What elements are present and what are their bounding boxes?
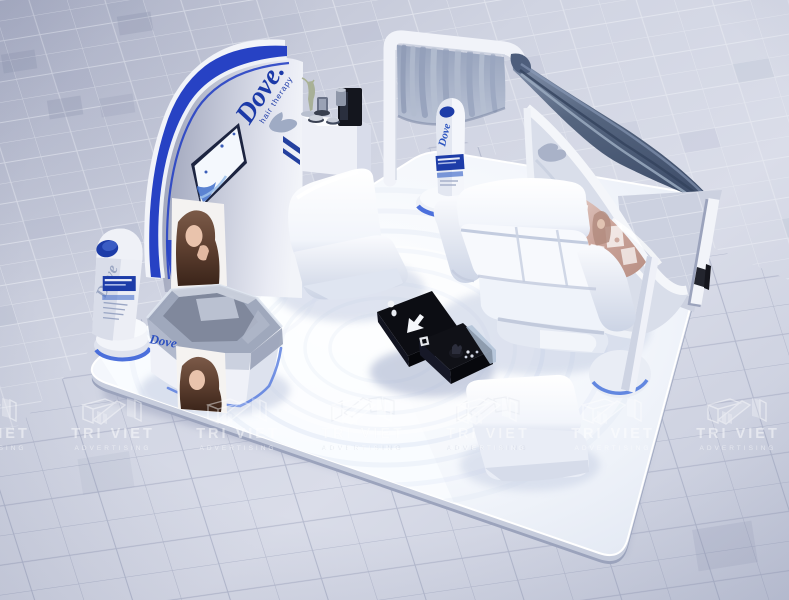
svg-text:ADVERTISING: ADVERTISING: [75, 445, 152, 452]
svg-text:TRI VIET: TRI VIET: [71, 426, 155, 442]
